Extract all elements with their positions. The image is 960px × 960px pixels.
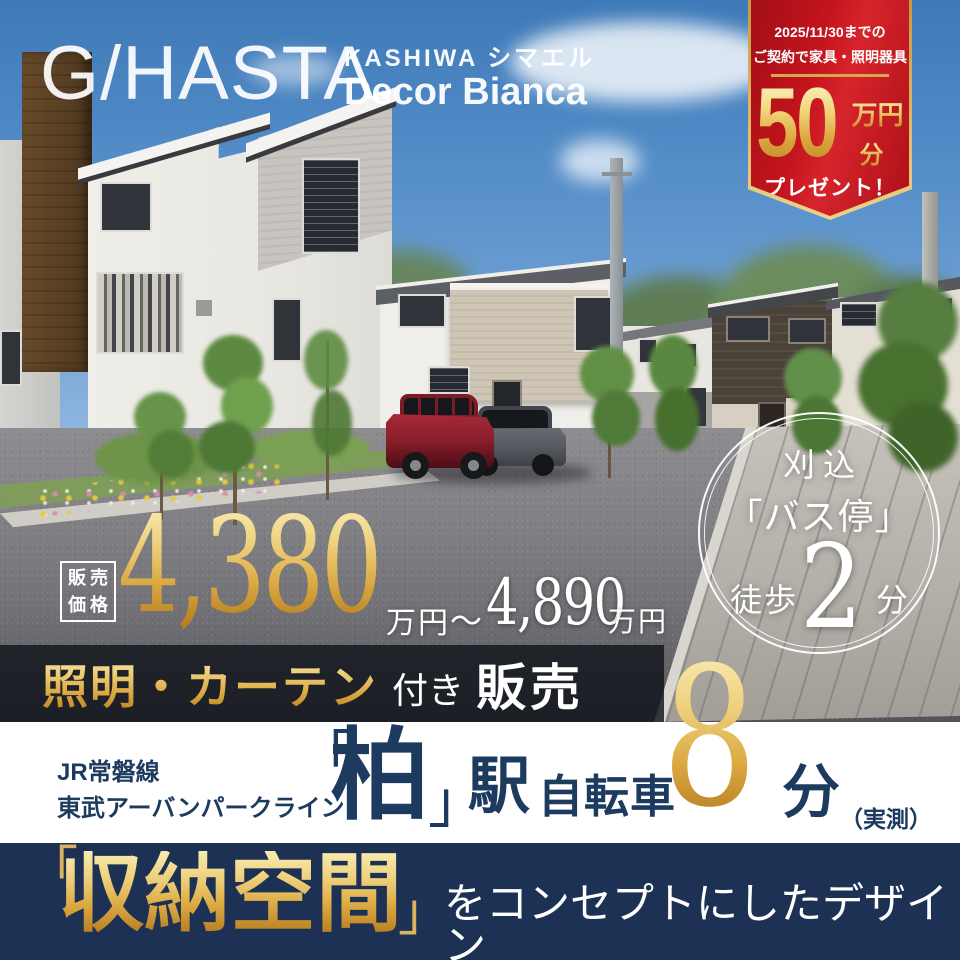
campaign-ribbon-inner: 2025/11/30までの ご契約で家具・照明器具 50 万円 分 プレゼント！ (751, 0, 909, 216)
tree (300, 330, 356, 505)
window (0, 330, 22, 386)
access-band: JR常磐線 東武アーバンパークライン 「 柏 」 駅 自転車 分 （実測） (0, 722, 960, 843)
campaign-period: 2025/11/30までの (751, 22, 909, 42)
included-suffix: 付き (392, 662, 464, 714)
series-name: KASHIWA シマエル (344, 46, 595, 72)
station-name: 柏 (330, 726, 430, 826)
window (788, 318, 826, 344)
wheel-hub (410, 460, 421, 471)
access-minutes: 8 (662, 650, 757, 829)
price-label-1: 販売 (64, 565, 112, 591)
price-max-unit: 万円 (608, 600, 668, 640)
price-label-box: 販売 価格 (60, 561, 116, 622)
window (726, 316, 770, 342)
concept-tail: をコンセプトにしたデザイン (444, 883, 960, 960)
model-name: Decor Bianca (344, 72, 595, 114)
campaign-condition: ご契約で家具・照明器具 (751, 47, 909, 67)
access-minutes-wrap: 8 (662, 650, 784, 829)
access-note: （実測） (840, 800, 932, 834)
window (272, 298, 302, 362)
access-minutes-unit: 分 (782, 764, 840, 822)
pole-crossarm (602, 172, 632, 176)
foliage-blob (199, 421, 255, 473)
red-suv (386, 390, 496, 482)
rail-line-2: 東武アーバンパークライン (57, 788, 345, 823)
included-sale: 販売 (476, 648, 584, 720)
campaign-amount: 50 (756, 79, 836, 165)
tree (645, 335, 703, 480)
foliage-blob (312, 390, 352, 456)
walk-unit: 分 (876, 575, 908, 621)
price-max: 4,890 (486, 566, 625, 640)
price-min-unit: 万円 (386, 598, 450, 642)
bus-stop: 「バス停」 (726, 488, 911, 540)
foliage-blob (592, 390, 640, 446)
tree (578, 346, 642, 481)
wheel-hub (468, 460, 479, 471)
car-wheel (532, 454, 554, 476)
price-tilde: 〜 (450, 596, 482, 642)
campaign-amount-row: 50 万円 分 (751, 79, 909, 170)
bus-walk-row: 徒歩 2 分 (730, 540, 908, 635)
campaign-unit-bun: 分 (860, 135, 884, 170)
price-label-2: 価格 (64, 592, 112, 618)
included-gold-items: 照明・カーテン (42, 651, 378, 717)
campaign-ribbon: 2025/11/30までの ご契約で家具・照明器具 50 万円 分 プレゼント！ (748, 0, 912, 220)
access-mode: 自転車 (538, 774, 676, 819)
foliage-blob (655, 387, 699, 451)
station-suffix: 駅 (468, 756, 530, 818)
window (96, 272, 184, 354)
bus-stop-badge: 刈込 「バス停」 徒歩 2 分 (698, 412, 940, 654)
window (100, 182, 152, 232)
foliage-blob (148, 430, 194, 478)
concept-band: 「 収納空間 」 をコンセプトにしたデザイン (0, 843, 960, 960)
campaign-unit-manyen: 万円 (852, 95, 904, 132)
window (302, 158, 360, 254)
campaign-amount-units: 万円 分 (852, 95, 904, 170)
logo-sub: KASHIWA シマエル Decor Bianca (344, 46, 595, 114)
foliage-blob (304, 330, 348, 390)
price-row: 4,380 万円 〜 4,890 万円 (118, 504, 471, 629)
walk-minutes: 2 (800, 540, 863, 635)
window (398, 294, 446, 328)
concept-bracket-close: 」 (398, 887, 450, 939)
rail-line-1: JR常磐線 (57, 752, 160, 787)
vent (196, 300, 212, 316)
real-estate-ad-poster: G/HASTA. KASHIWA シマエル Decor Bianca 2025/… (0, 0, 960, 960)
walk-label: 徒歩 (730, 575, 798, 621)
included-items-band: 照明・カーテン 付き 販売 (0, 645, 664, 722)
concept-keyword: 収納空間 (58, 851, 402, 937)
price-min: 4,380 (118, 504, 379, 629)
bus-area: 刈込 (775, 440, 863, 486)
car-glass (404, 398, 474, 415)
